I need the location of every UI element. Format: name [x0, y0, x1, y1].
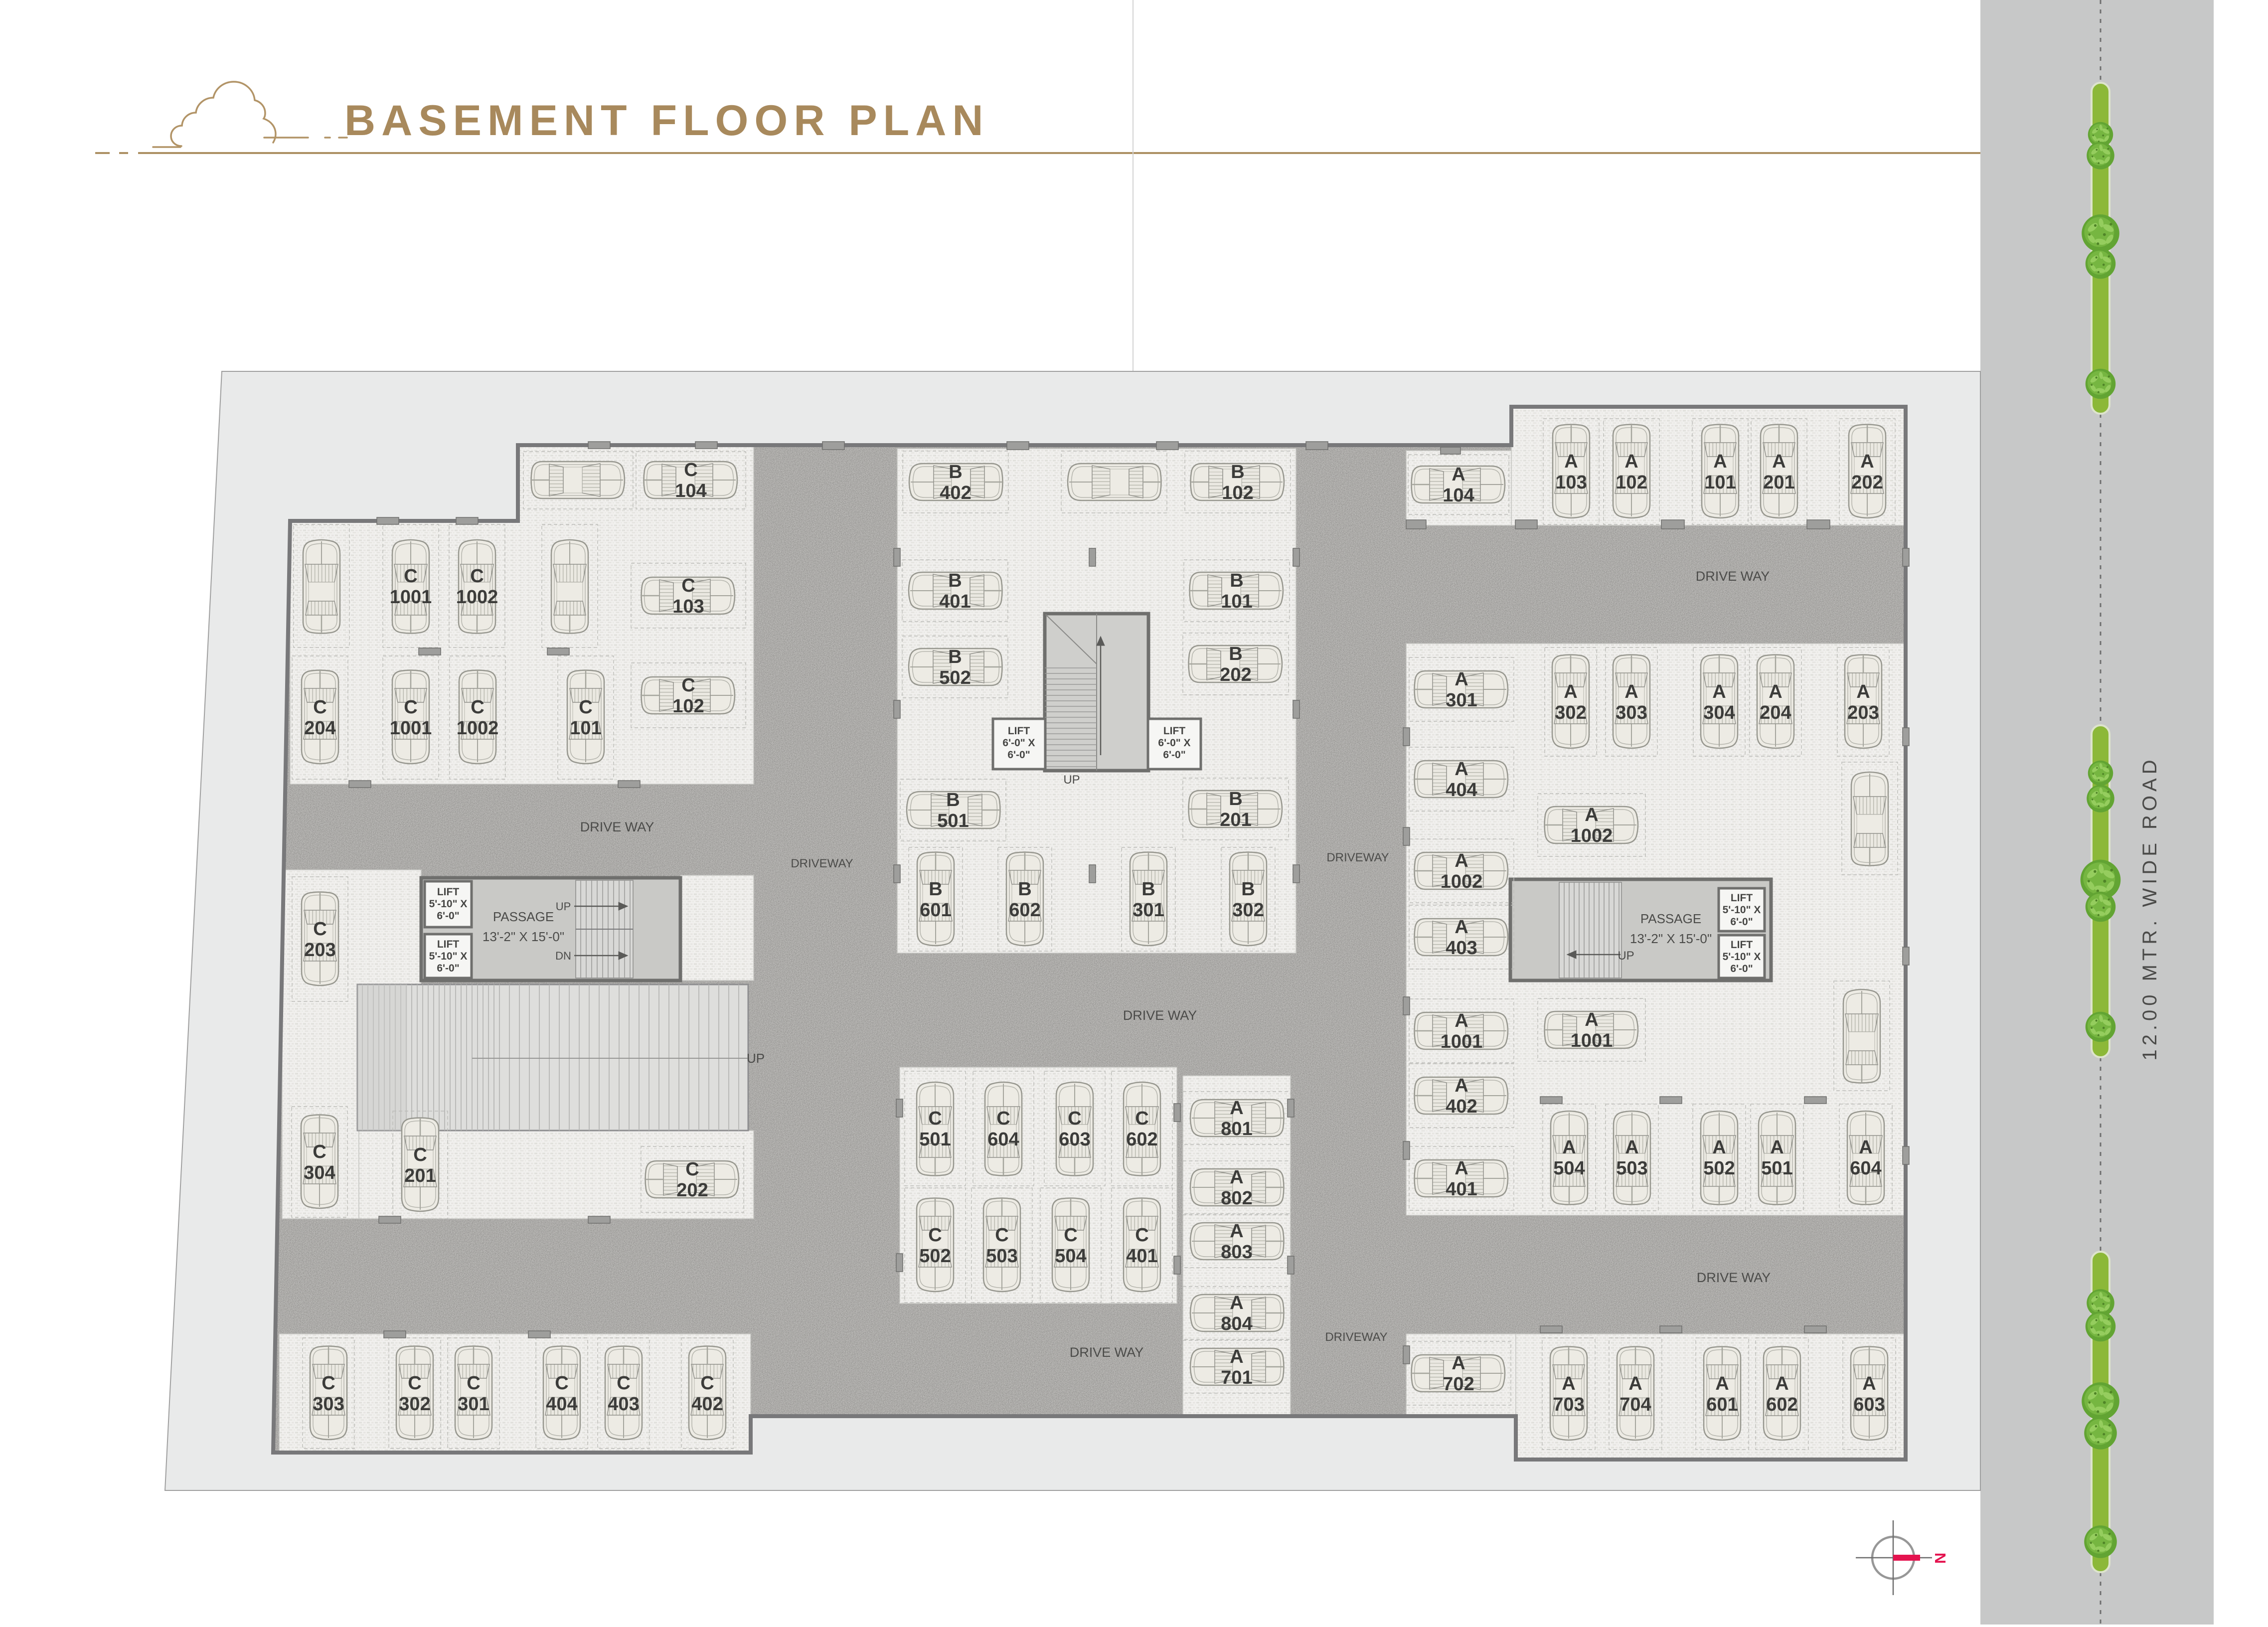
- svg-text:601: 601: [920, 900, 951, 921]
- svg-text:A: A: [1625, 1137, 1638, 1158]
- svg-text:B: B: [1141, 879, 1155, 900]
- svg-text:501: 501: [1761, 1158, 1792, 1179]
- svg-text:402: 402: [1446, 1096, 1477, 1117]
- svg-text:PASSAGE: PASSAGE: [1640, 911, 1701, 926]
- svg-text:C: C: [1135, 1225, 1148, 1246]
- svg-text:201: 201: [1763, 472, 1794, 493]
- svg-text:A: A: [1585, 805, 1598, 825]
- svg-text:A: A: [1859, 1137, 1872, 1158]
- svg-text:B: B: [1229, 789, 1242, 810]
- svg-text:LIFT: LIFT: [437, 886, 459, 898]
- svg-text:B: B: [1230, 570, 1243, 591]
- svg-text:A: A: [1856, 681, 1870, 702]
- svg-text:C: C: [313, 697, 326, 718]
- svg-text:702: 702: [1443, 1374, 1474, 1395]
- svg-text:701: 701: [1221, 1367, 1252, 1388]
- svg-text:PASSAGE: PASSAGE: [493, 909, 554, 924]
- svg-text:C: C: [996, 1108, 1010, 1129]
- svg-text:C: C: [685, 1159, 699, 1180]
- svg-text:C: C: [408, 1373, 421, 1394]
- svg-text:C: C: [322, 1373, 335, 1394]
- svg-text:A: A: [1455, 669, 1468, 690]
- svg-text:304: 304: [304, 1162, 335, 1183]
- svg-text:N: N: [1932, 1553, 1949, 1564]
- svg-text:1001: 1001: [390, 718, 432, 739]
- svg-text:A: A: [1562, 1137, 1576, 1158]
- svg-text:B: B: [1229, 644, 1242, 664]
- svg-text:A: A: [1770, 1137, 1783, 1158]
- svg-text:C: C: [681, 575, 695, 596]
- svg-text:DRIVE WAY: DRIVE WAY: [1696, 569, 1770, 584]
- svg-text:401: 401: [1126, 1246, 1157, 1267]
- svg-text:UP: UP: [747, 1051, 765, 1066]
- svg-text:203: 203: [1847, 702, 1879, 723]
- svg-text:802: 802: [1221, 1188, 1252, 1209]
- svg-text:BASEMENT FLOOR PLAN: BASEMENT FLOOR PLAN: [344, 97, 989, 145]
- svg-text:402: 402: [940, 483, 971, 503]
- svg-text:DRIVE WAY: DRIVE WAY: [1123, 1008, 1197, 1023]
- svg-text:C: C: [313, 919, 326, 940]
- svg-text:6'-0": 6'-0": [1163, 749, 1185, 761]
- svg-text:1002: 1002: [1571, 825, 1613, 846]
- svg-text:LIFT: LIFT: [437, 939, 459, 950]
- svg-text:602: 602: [1766, 1394, 1797, 1415]
- svg-text:DRIVEWAY: DRIVEWAY: [791, 857, 853, 870]
- svg-text:202: 202: [676, 1180, 708, 1201]
- svg-text:204: 204: [1760, 702, 1791, 723]
- svg-text:A: A: [1455, 1010, 1468, 1031]
- svg-text:A: A: [1624, 451, 1638, 472]
- svg-text:13'-2" X 15'-0": 13'-2" X 15'-0": [483, 929, 564, 944]
- svg-text:402: 402: [691, 1394, 723, 1415]
- svg-text:A: A: [1713, 451, 1727, 472]
- svg-text:401: 401: [1446, 1179, 1477, 1200]
- svg-text:1002: 1002: [456, 587, 498, 608]
- svg-text:A: A: [1715, 1373, 1729, 1394]
- svg-text:503: 503: [986, 1246, 1017, 1267]
- svg-text:C: C: [579, 697, 592, 718]
- svg-text:A: A: [1775, 1373, 1788, 1394]
- svg-text:203: 203: [304, 940, 335, 961]
- svg-text:504: 504: [1055, 1246, 1086, 1267]
- svg-text:C: C: [928, 1108, 942, 1129]
- svg-text:A: A: [1455, 1075, 1468, 1096]
- svg-text:A: A: [1585, 1009, 1598, 1030]
- svg-text:C: C: [404, 566, 417, 587]
- svg-text:A: A: [1624, 681, 1638, 702]
- svg-text:C: C: [1068, 1108, 1081, 1129]
- svg-text:6'-0": 6'-0": [437, 963, 459, 974]
- svg-text:801: 801: [1221, 1119, 1252, 1139]
- svg-text:301: 301: [1446, 690, 1477, 711]
- svg-text:502: 502: [919, 1246, 951, 1267]
- svg-text:603: 603: [1853, 1394, 1885, 1415]
- svg-text:C: C: [684, 460, 697, 481]
- svg-text:B: B: [1241, 879, 1255, 900]
- svg-text:301: 301: [1133, 900, 1164, 921]
- svg-text:A: A: [1862, 1373, 1876, 1394]
- svg-text:6'-0" X: 6'-0" X: [1002, 737, 1035, 749]
- svg-text:401: 401: [939, 591, 971, 612]
- svg-text:704: 704: [1620, 1394, 1651, 1415]
- svg-text:503: 503: [1616, 1158, 1647, 1179]
- svg-text:504: 504: [1553, 1158, 1585, 1179]
- svg-text:102: 102: [1222, 483, 1253, 503]
- svg-text:1001: 1001: [1571, 1030, 1613, 1051]
- svg-text:101: 101: [570, 718, 601, 739]
- svg-text:804: 804: [1221, 1313, 1252, 1334]
- svg-text:DN: DN: [555, 950, 571, 962]
- svg-text:102: 102: [1616, 472, 1647, 493]
- svg-text:B: B: [1018, 879, 1031, 900]
- svg-text:A: A: [1564, 451, 1578, 472]
- svg-text:C: C: [413, 1144, 427, 1165]
- svg-text:LIFT: LIFT: [1163, 725, 1185, 737]
- svg-text:A: A: [1860, 451, 1874, 472]
- svg-text:403: 403: [1446, 938, 1477, 959]
- svg-text:A: A: [1628, 1373, 1642, 1394]
- svg-text:302: 302: [399, 1394, 430, 1415]
- svg-text:403: 403: [608, 1394, 639, 1415]
- svg-text:A: A: [1769, 681, 1782, 702]
- svg-text:A: A: [1712, 1137, 1726, 1158]
- svg-text:B: B: [929, 879, 942, 900]
- svg-text:C: C: [471, 697, 484, 718]
- svg-text:DRIVE WAY: DRIVE WAY: [1697, 1270, 1771, 1285]
- svg-text:6'-0": 6'-0": [437, 910, 459, 922]
- svg-text:404: 404: [1446, 780, 1477, 801]
- svg-text:B: B: [949, 462, 962, 483]
- svg-text:A: A: [1562, 1373, 1575, 1394]
- svg-text:601: 601: [1706, 1394, 1738, 1415]
- svg-text:602: 602: [1126, 1129, 1157, 1150]
- svg-text:C: C: [681, 675, 695, 696]
- svg-text:602: 602: [1009, 900, 1040, 921]
- svg-text:303: 303: [313, 1394, 344, 1415]
- svg-text:B: B: [1231, 462, 1244, 483]
- svg-text:C: C: [467, 1373, 480, 1394]
- svg-text:C: C: [1064, 1225, 1077, 1246]
- svg-text:5'-10" X: 5'-10" X: [429, 951, 468, 962]
- svg-text:UP: UP: [1618, 949, 1634, 963]
- svg-text:A: A: [1564, 681, 1577, 702]
- svg-text:103: 103: [1555, 472, 1587, 493]
- svg-text:204: 204: [304, 718, 335, 739]
- svg-text:104: 104: [675, 481, 706, 501]
- svg-text:B: B: [946, 790, 960, 811]
- svg-text:604: 604: [1850, 1158, 1881, 1179]
- svg-text:303: 303: [1616, 702, 1647, 723]
- svg-text:UP: UP: [556, 900, 571, 913]
- svg-text:101: 101: [1704, 472, 1736, 493]
- svg-text:302: 302: [1232, 900, 1264, 921]
- svg-text:C: C: [995, 1225, 1008, 1246]
- svg-text:A: A: [1772, 451, 1785, 472]
- svg-text:DRIVEWAY: DRIVEWAY: [1326, 851, 1389, 864]
- svg-text:C: C: [470, 566, 484, 587]
- svg-text:201: 201: [1220, 810, 1251, 830]
- svg-text:C: C: [617, 1373, 630, 1394]
- svg-text:A: A: [1230, 1167, 1243, 1188]
- svg-text:404: 404: [546, 1394, 577, 1415]
- svg-text:12.00 MTR. WIDE ROAD: 12.00 MTR. WIDE ROAD: [2139, 756, 2161, 1060]
- svg-text:C: C: [313, 1141, 326, 1162]
- svg-text:1002: 1002: [457, 718, 499, 739]
- svg-text:A: A: [1452, 1353, 1465, 1374]
- svg-text:A: A: [1230, 1293, 1243, 1313]
- svg-text:201: 201: [404, 1165, 436, 1186]
- svg-text:LIFT: LIFT: [1731, 892, 1753, 904]
- svg-text:B: B: [948, 570, 962, 591]
- svg-text:502: 502: [939, 667, 971, 688]
- svg-text:13'-2" X 15'-0": 13'-2" X 15'-0": [1630, 931, 1712, 946]
- svg-text:C: C: [555, 1373, 568, 1394]
- svg-text:A: A: [1455, 759, 1468, 780]
- svg-text:1001: 1001: [1441, 1031, 1483, 1052]
- svg-text:202: 202: [1220, 664, 1251, 685]
- svg-text:B: B: [948, 647, 962, 667]
- svg-text:803: 803: [1221, 1242, 1252, 1263]
- svg-text:UP: UP: [1063, 773, 1080, 787]
- svg-text:A: A: [1230, 1098, 1243, 1119]
- svg-text:A: A: [1230, 1221, 1243, 1242]
- svg-text:6'-0": 6'-0": [1730, 916, 1753, 928]
- svg-text:502: 502: [1703, 1158, 1735, 1179]
- svg-text:A: A: [1712, 681, 1726, 702]
- svg-text:1002: 1002: [1441, 871, 1483, 892]
- svg-text:301: 301: [458, 1394, 489, 1415]
- svg-text:C: C: [928, 1225, 942, 1246]
- svg-text:LIFT: LIFT: [1008, 725, 1030, 737]
- svg-text:5'-10" X: 5'-10" X: [1723, 904, 1761, 916]
- svg-text:604: 604: [987, 1129, 1019, 1150]
- svg-text:104: 104: [1443, 485, 1474, 506]
- svg-text:501: 501: [919, 1129, 951, 1150]
- svg-text:501: 501: [937, 811, 969, 831]
- svg-text:A: A: [1230, 1346, 1243, 1367]
- svg-text:603: 603: [1059, 1129, 1090, 1150]
- svg-text:C: C: [700, 1373, 714, 1394]
- svg-text:101: 101: [1221, 591, 1252, 612]
- svg-text:202: 202: [1851, 472, 1883, 493]
- svg-text:A: A: [1455, 1158, 1468, 1179]
- svg-text:A: A: [1452, 464, 1465, 485]
- svg-text:6'-0" X: 6'-0" X: [1158, 737, 1190, 749]
- svg-text:102: 102: [672, 696, 704, 717]
- svg-text:A: A: [1455, 850, 1468, 871]
- svg-text:C: C: [404, 697, 417, 718]
- svg-text:DRIVE WAY: DRIVE WAY: [1070, 1345, 1144, 1360]
- svg-text:C: C: [1135, 1108, 1148, 1129]
- svg-text:5'-10" X: 5'-10" X: [429, 898, 468, 910]
- svg-text:5'-10" X: 5'-10" X: [1723, 951, 1761, 963]
- svg-text:103: 103: [672, 596, 704, 617]
- svg-text:1001: 1001: [390, 587, 432, 608]
- svg-text:DRIVE WAY: DRIVE WAY: [580, 819, 654, 834]
- svg-text:A: A: [1455, 917, 1468, 938]
- svg-text:6'-0": 6'-0": [1730, 963, 1753, 975]
- svg-text:703: 703: [1553, 1394, 1584, 1415]
- svg-text:6'-0": 6'-0": [1007, 749, 1030, 761]
- svg-text:304: 304: [1703, 702, 1735, 723]
- svg-text:302: 302: [1555, 702, 1586, 723]
- svg-text:DRIVEWAY: DRIVEWAY: [1325, 1330, 1387, 1344]
- svg-text:LIFT: LIFT: [1731, 939, 1753, 951]
